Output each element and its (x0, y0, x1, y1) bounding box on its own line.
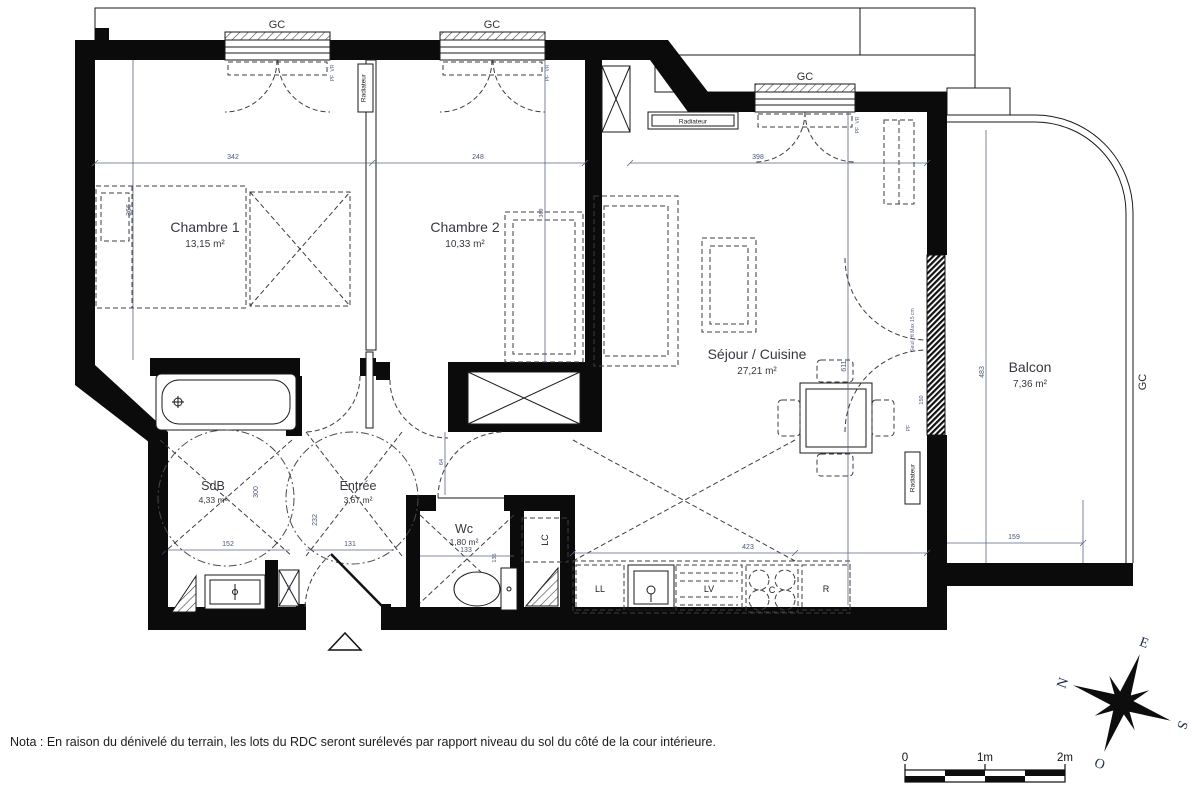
scale-one: 1m (977, 752, 993, 764)
room-label-balcon: Balcon (1009, 359, 1052, 375)
dim-top-left: 342 (227, 154, 239, 161)
kitchen-counter: LL LV C R (573, 561, 850, 613)
nota-text: Nota : En raison du dénivelé du terrain,… (10, 735, 716, 749)
room-area-chambre1: 13,15 m² (185, 239, 225, 250)
room-area-balcon: 7,36 m² (1013, 379, 1048, 390)
balcony-structure: GC (947, 115, 1149, 586)
radiateur-label: Radiateur (910, 463, 917, 492)
pf-label: PF (855, 127, 861, 133)
pf-door-label: PF (906, 425, 912, 431)
pf-label: PF (330, 75, 336, 81)
dim-pf-width: 150 (919, 395, 925, 404)
dim-ch1-height: 366 (126, 204, 133, 216)
chambre2-wardrobe (505, 212, 583, 362)
room-label-chambre1: Chambre 1 (170, 219, 239, 235)
balcony-glazing-strip (927, 255, 945, 435)
gc-label: GC (269, 19, 286, 31)
compass-east: E (1137, 635, 1150, 652)
dim-sdb-height: 300 (253, 486, 260, 498)
room-label-wc: Wc (455, 522, 473, 536)
compass-north: N (1055, 676, 1073, 691)
floor-plan: GC (0, 0, 1195, 800)
dim-entree-width: 131 (344, 541, 356, 548)
lc-label: LC (540, 534, 550, 546)
dim-top-mid: 248 (472, 154, 484, 161)
dim-balcon-height: 483 (979, 366, 986, 378)
pf-label: PF (545, 75, 551, 81)
seuil-label: Seuil Ht Max 15 cm (910, 308, 916, 351)
room-area-sejour: 27,21 m² (737, 366, 777, 377)
compass-rose: N E S O (1055, 635, 1190, 771)
compass-south: S (1173, 719, 1190, 731)
room-label-sejour: Séjour / Cuisine (708, 346, 807, 362)
room-label-sdb: SdB (201, 479, 225, 493)
dim-balcon-width: 159 (1008, 534, 1020, 541)
radiateur-label: Radiateur (679, 119, 708, 126)
compass-west: O (1093, 754, 1108, 772)
entrance-marker (329, 633, 361, 650)
room-area-wc: 1,80 m² (450, 537, 479, 547)
dim-sejour-height: 611 (841, 360, 848, 371)
dim-top-right: 398 (752, 154, 764, 161)
room-area-chambre2: 10,33 m² (445, 239, 485, 250)
vr-label: VR (330, 64, 336, 71)
gc-label-balcony: GC (1137, 374, 1149, 391)
cooktop-label: C (769, 585, 776, 595)
scale-bar: 0 1m 2m (902, 752, 1073, 782)
radiateur-label: Radiateur (361, 73, 368, 102)
washer-label: LL (595, 584, 605, 594)
gc-label: GC (797, 71, 814, 83)
window-chambre1: GC VR PF (225, 19, 336, 112)
room-area-sdb: 4,33 m² (199, 495, 228, 505)
radiators: Radiateur Radiateur Radiateur (358, 64, 920, 504)
walls (75, 40, 947, 630)
scale-two: 2m (1057, 752, 1073, 764)
dim-wc-width: 133 (460, 547, 472, 554)
dim-passage: 64 (439, 459, 445, 465)
dim-ch2-height: 369 (539, 208, 545, 217)
vr-label: VR (855, 116, 861, 123)
dishwasher-label: LV (704, 584, 714, 594)
sejour-furniture (573, 120, 927, 561)
scale-zero: 0 (902, 752, 908, 764)
window-chambre2: GC VR PF (440, 19, 551, 112)
dim-sdb-width: 152 (222, 541, 234, 548)
gc-label: GC (484, 19, 501, 31)
dim-kitchen-width: 423 (742, 544, 754, 551)
dim-entree-height: 232 (312, 514, 319, 526)
fridge-label: R (823, 584, 830, 594)
room-label-entree: Entrée (340, 479, 377, 493)
window-sejour: GC VR PF (755, 71, 861, 162)
dim-wc-height: 135 (492, 553, 498, 562)
vr-label: VR (545, 64, 551, 71)
room-area-entree: 3,67 m² (344, 495, 373, 505)
room-label-chambre2: Chambre 2 (430, 219, 499, 235)
ta-label: TA (287, 584, 293, 591)
floor-plan-page: GC (0, 0, 1195, 800)
